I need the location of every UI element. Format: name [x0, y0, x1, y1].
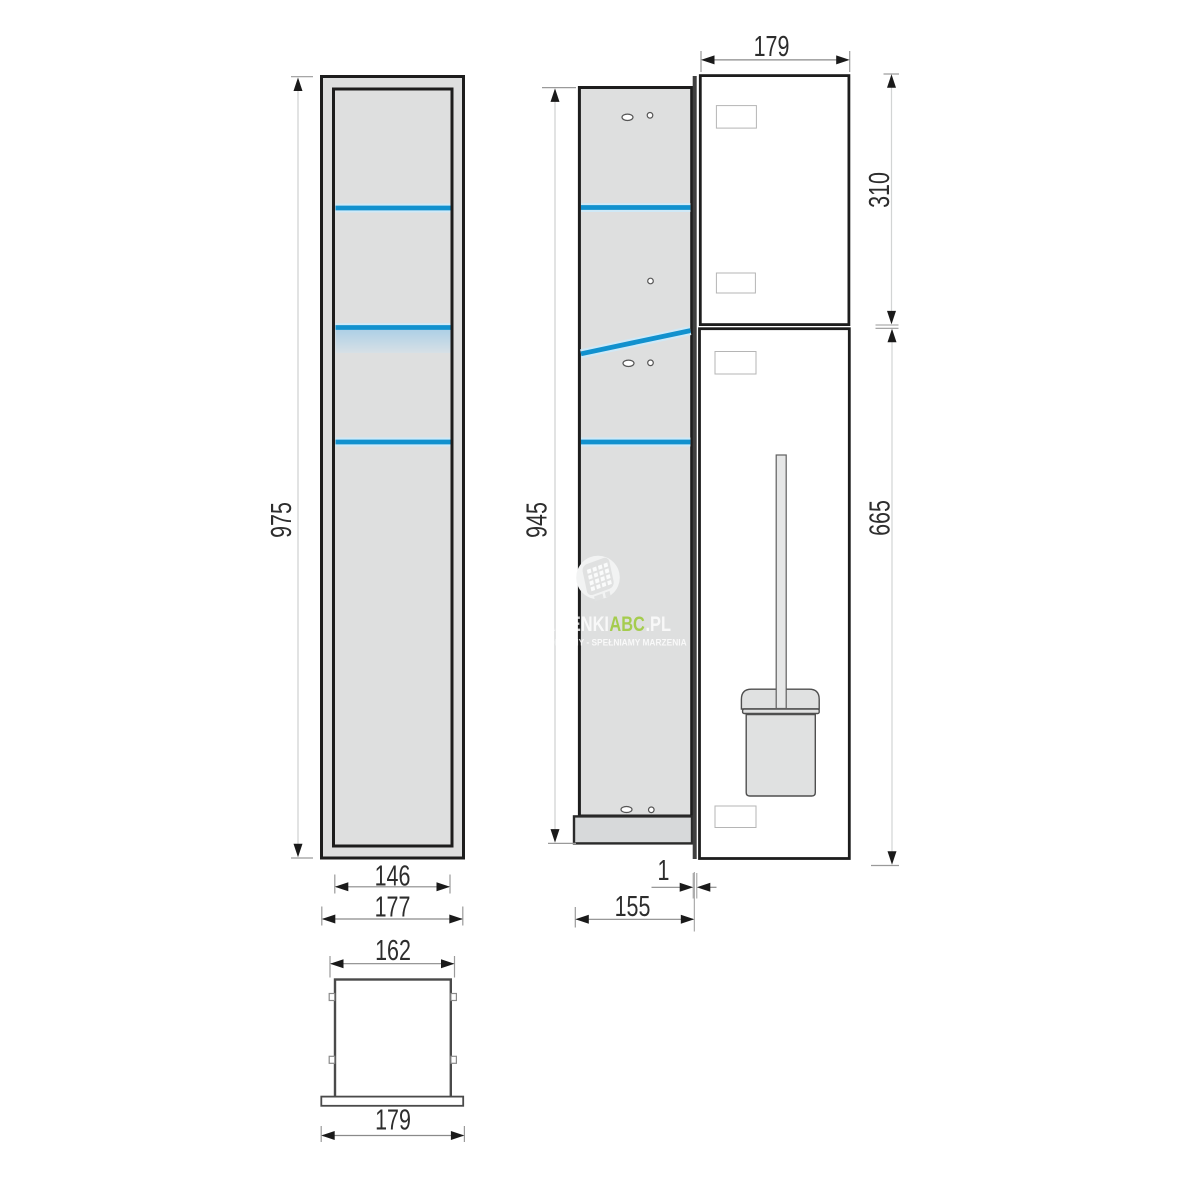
svg-text:310: 310 — [864, 172, 896, 208]
svg-text:ABC: ABC — [609, 612, 645, 635]
svg-text:975: 975 — [266, 502, 298, 538]
svg-text:1: 1 — [658, 855, 670, 887]
svg-text:665: 665 — [864, 500, 896, 536]
svg-text:162: 162 — [375, 935, 411, 967]
svg-text:945: 945 — [521, 502, 553, 538]
svg-text:179: 179 — [754, 31, 790, 63]
svg-text:146: 146 — [375, 860, 411, 892]
svg-text:155: 155 — [615, 891, 651, 923]
svg-text:179: 179 — [375, 1104, 411, 1136]
svg-text:TWORZYMY - SPEŁNIAMY MARZENIA: TWORZYMY - SPEŁNIAMY MARZENIA — [535, 637, 687, 647]
svg-text:177: 177 — [375, 891, 411, 923]
svg-text:.PL: .PL — [646, 612, 671, 635]
svg-text:ŁAZIENKI: ŁAZIENKI — [533, 612, 609, 635]
